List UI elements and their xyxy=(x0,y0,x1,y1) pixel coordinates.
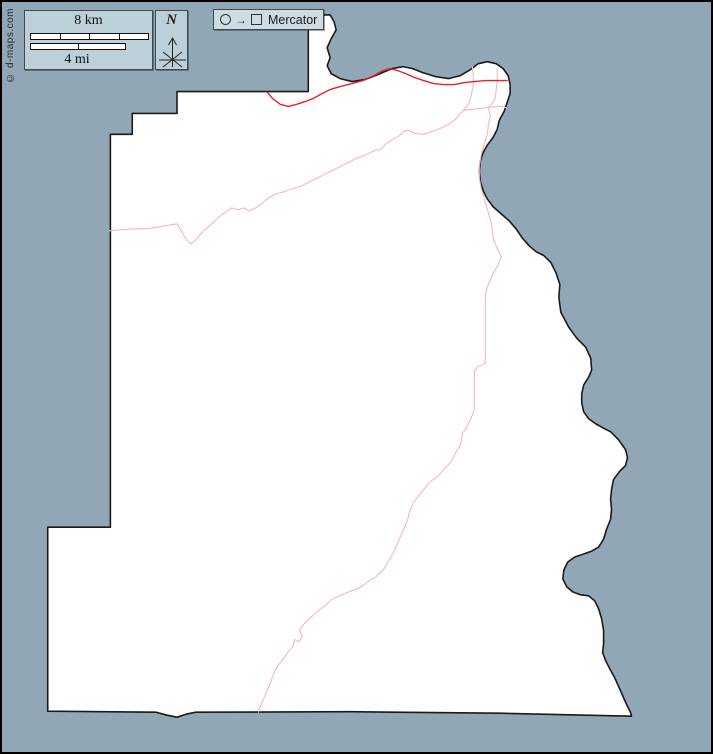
arrow-right-icon: → xyxy=(235,14,247,26)
compass-legend: N xyxy=(155,10,188,70)
flat-map-icon xyxy=(251,14,262,25)
map-canvas xyxy=(2,2,711,752)
scale-bar-segment xyxy=(79,44,126,49)
compass-rose-icon xyxy=(156,33,189,69)
land-region xyxy=(48,15,632,717)
scale-legend: 8 km 4 mi xyxy=(24,10,153,70)
scale-bar-segment xyxy=(90,34,120,39)
projection-name: Mercator xyxy=(266,13,317,27)
projection-legend: → Mercator xyxy=(213,9,324,30)
scale-bar-segment xyxy=(31,34,61,39)
scale-bar-km xyxy=(30,33,149,40)
copyright-credit: © d-maps.com xyxy=(5,8,16,83)
scale-bar-segment xyxy=(61,34,91,39)
map-viewport: 8 km 4 mi N → Mercator xyxy=(0,0,713,754)
compass-north-label: N xyxy=(156,12,187,29)
scale-bar-segment xyxy=(120,34,149,39)
scale-mi-label: 4 mi xyxy=(30,52,124,68)
scale-km-label: 8 km xyxy=(25,13,152,29)
scale-bar-mi xyxy=(30,43,126,50)
sphere-icon xyxy=(220,14,231,25)
scale-bar-segment xyxy=(31,44,79,49)
